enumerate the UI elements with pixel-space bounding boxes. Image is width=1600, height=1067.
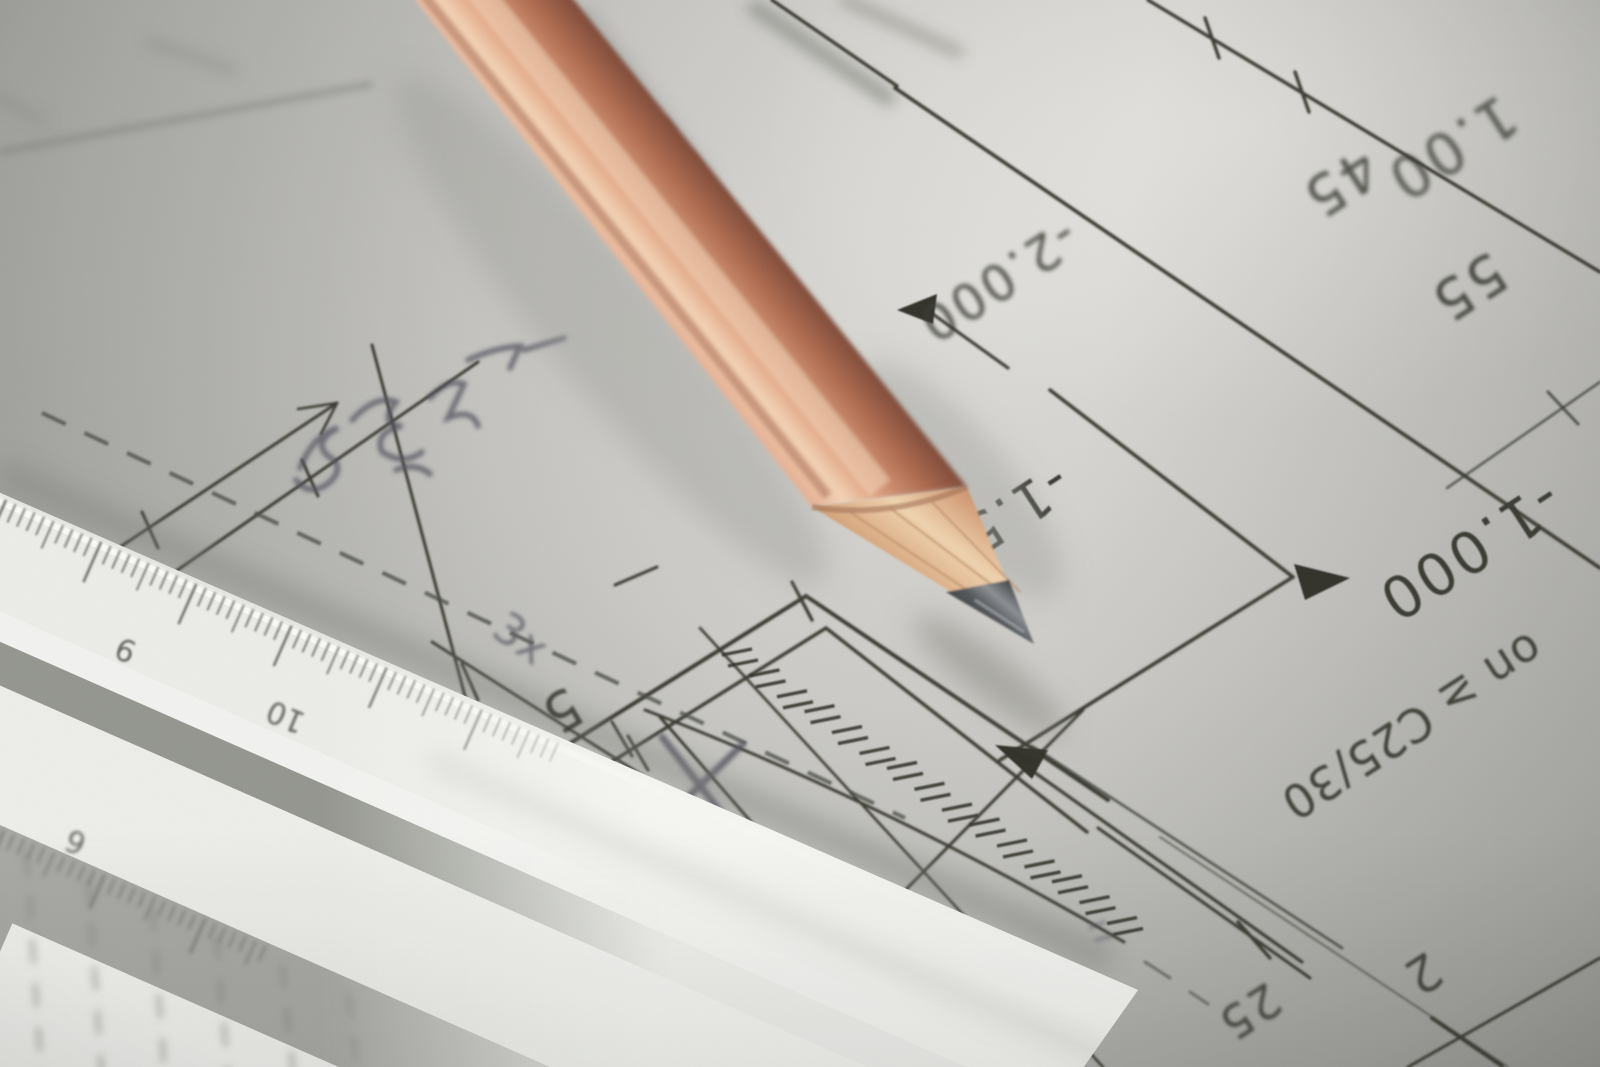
film-grain — [0, 0, 1600, 1067]
pencil-layer — [0, 0, 1600, 1067]
photo-pencil-on-blueprint: 1.00 45 55 -2.000 -1.000 on ≥ C25/30 -1.… — [0, 0, 1600, 1067]
